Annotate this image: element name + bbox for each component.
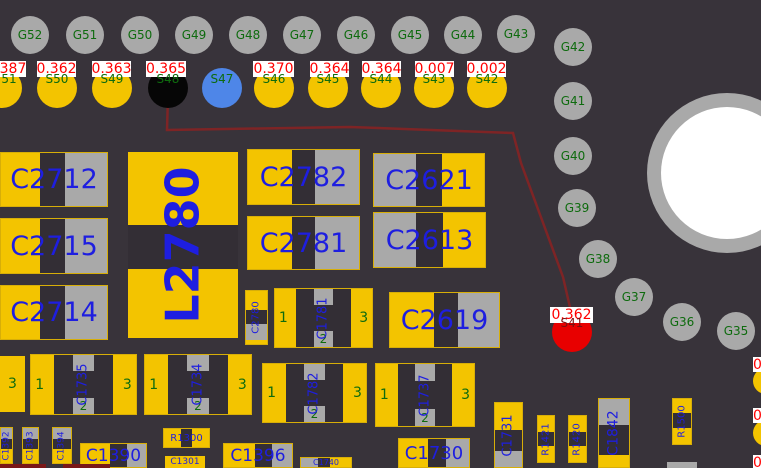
test-pad-label: G40 xyxy=(561,150,586,162)
test-pad-label: G51 xyxy=(73,29,98,41)
test-pad-G41[interactable]: G41 xyxy=(554,82,592,120)
measurement-value: 0 xyxy=(753,408,761,424)
test-point-label-wrap: S48 xyxy=(146,73,190,85)
test-pad-label: G44 xyxy=(451,29,476,41)
test-pad-label: G41 xyxy=(561,95,586,107)
test-pad-G37[interactable]: G37 xyxy=(615,278,653,316)
test-pad-G46[interactable]: G46 xyxy=(337,16,375,54)
test-point-label-wrap: S43 xyxy=(412,73,456,85)
test-point-label: S50 xyxy=(46,72,69,86)
measurement-cut-0: 0 xyxy=(753,357,761,372)
test-pad-G39[interactable]: G39 xyxy=(558,189,596,227)
test-pad-label: G47 xyxy=(290,29,315,41)
test-point-label: 51 xyxy=(1,72,16,86)
test-point-label: S47 xyxy=(211,72,234,86)
test-point-label-wrap: S46 xyxy=(252,73,296,85)
test-pad-label: G46 xyxy=(344,29,369,41)
test-pad-label: G36 xyxy=(670,316,695,328)
test-pad-G51[interactable]: G51 xyxy=(66,16,104,54)
test-pad-G42[interactable]: G42 xyxy=(554,28,592,66)
test-pad-label: G43 xyxy=(504,28,529,40)
pcb-board-view: C2712C2715C2714L2780C2782C2621C2781C2613… xyxy=(0,0,761,468)
test-pad-G50[interactable]: G50 xyxy=(121,16,159,54)
test-point-label: S42 xyxy=(476,72,499,86)
test-pad-label: G49 xyxy=(182,29,207,41)
test-point-label-wrap: S50 xyxy=(35,73,79,85)
measurement-cut-2: 0 xyxy=(753,455,761,468)
test-point-label-wrap: S44 xyxy=(359,73,403,85)
test-point-label: S44 xyxy=(370,72,393,86)
test-pad-label: G39 xyxy=(565,202,590,214)
test-pad-label: G50 xyxy=(128,29,153,41)
test-pad-G36[interactable]: G36 xyxy=(663,303,701,341)
test-pad-G48[interactable]: G48 xyxy=(229,16,267,54)
test-point-label-wrap: 51 xyxy=(0,73,31,85)
probe-trace xyxy=(167,96,572,316)
test-point-label-wrap: S45 xyxy=(306,73,350,85)
test-pad-G52[interactable]: G52 xyxy=(11,16,49,54)
test-point-label: S49 xyxy=(101,72,124,86)
test-pad-label: G38 xyxy=(586,253,611,265)
test-pad-G44[interactable]: G44 xyxy=(444,16,482,54)
test-pad-G35[interactable]: G35 xyxy=(717,312,755,350)
test-point-label: S46 xyxy=(263,72,286,86)
test-pad-G47[interactable]: G47 xyxy=(283,16,321,54)
measurement-cut-1: 0 xyxy=(753,408,761,423)
test-point-label: S43 xyxy=(423,72,446,86)
test-pad-G43[interactable]: G43 xyxy=(497,15,535,53)
test-point-label-wrap: S49 xyxy=(90,73,134,85)
test-point-label-wrap: S47 xyxy=(200,73,244,85)
measurement-value: 0 xyxy=(753,455,761,468)
test-point-label: S41 xyxy=(561,316,584,330)
test-pad-label: G37 xyxy=(622,291,647,303)
test-pad-G38[interactable]: G38 xyxy=(579,240,617,278)
test-pad-label: G48 xyxy=(236,29,261,41)
measurement-value: 0 xyxy=(753,357,761,373)
test-pad-label: G52 xyxy=(18,29,43,41)
test-pad-G49[interactable]: G49 xyxy=(175,16,213,54)
test-pad-G45[interactable]: G45 xyxy=(391,16,429,54)
test-pad-G40[interactable]: G40 xyxy=(554,137,592,175)
test-pad-label: G35 xyxy=(724,325,749,337)
test-point-label-wrap: S42 xyxy=(465,73,509,85)
test-point-label: S48 xyxy=(157,72,180,86)
test-pad-label: G45 xyxy=(398,29,423,41)
test-pad-label: G42 xyxy=(561,41,586,53)
test-point-label: S45 xyxy=(317,72,340,86)
test-point-label-wrap: S41 xyxy=(550,317,594,329)
